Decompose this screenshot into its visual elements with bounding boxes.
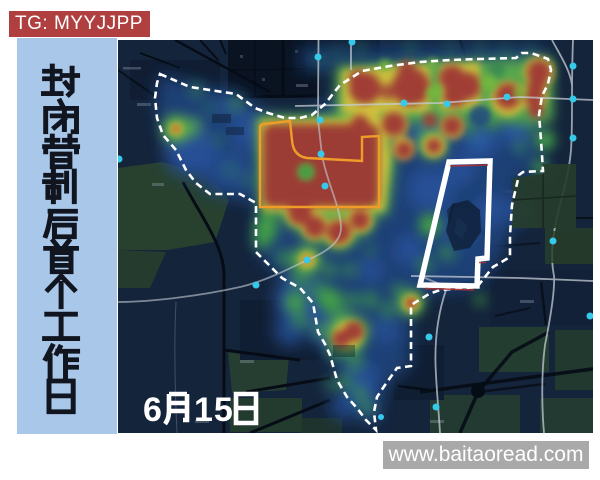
svg-text:15: 15: [194, 391, 234, 427]
svg-text:6: 6: [143, 391, 162, 427]
